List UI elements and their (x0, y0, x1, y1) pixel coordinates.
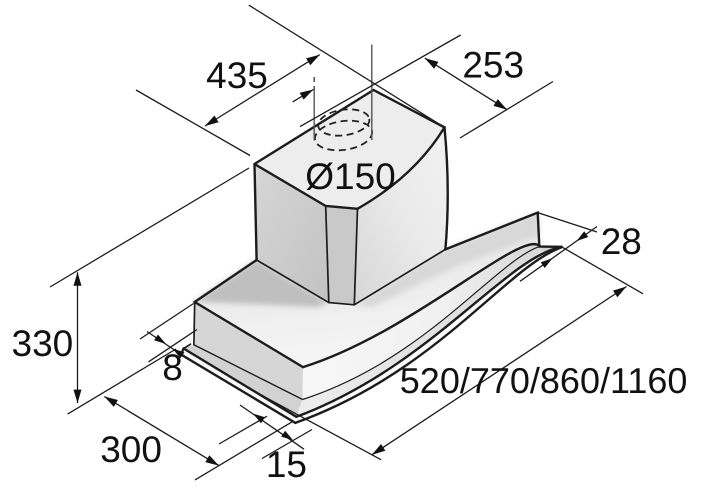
svg-text:253: 253 (462, 45, 524, 86)
svg-text:Ø150: Ø150 (305, 156, 396, 197)
svg-text:330: 330 (12, 323, 74, 364)
svg-text:28: 28 (601, 221, 642, 262)
svg-text:15: 15 (266, 444, 307, 485)
svg-text:8: 8 (162, 347, 183, 388)
svg-text:300: 300 (100, 429, 162, 470)
svg-text:520/770/860/1160: 520/770/860/1160 (400, 360, 688, 401)
svg-text:435: 435 (206, 55, 268, 96)
